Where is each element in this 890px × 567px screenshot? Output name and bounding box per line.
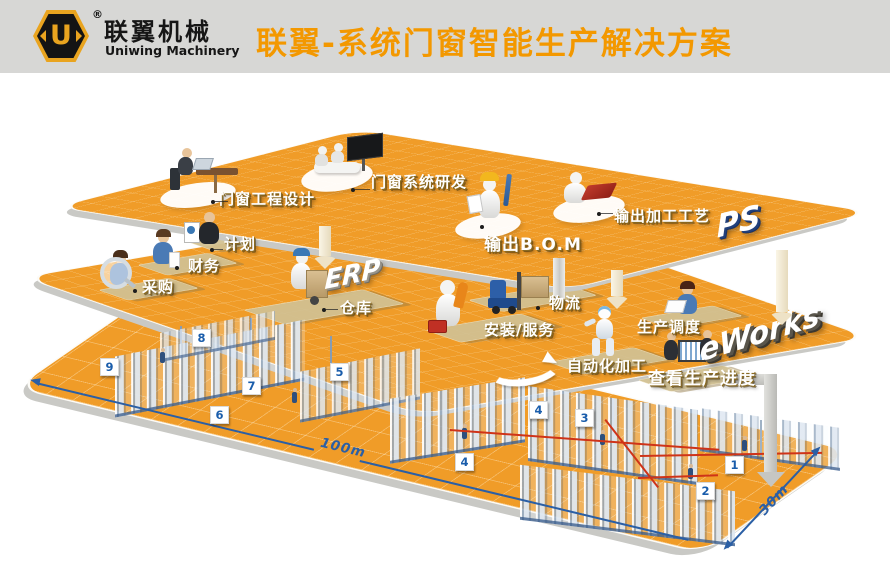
- magnifier-icon: [100, 257, 132, 289]
- floor-marker: 8: [192, 329, 211, 347]
- presentation-screen: [347, 133, 383, 161]
- page-title: 联翼-系统门窗智能生产解决方案: [256, 18, 733, 63]
- floor-marker: 5: [330, 363, 349, 381]
- floor-marker: 3: [575, 409, 594, 427]
- toolbox: [428, 320, 447, 333]
- floor-marker: 4: [529, 401, 548, 419]
- hard-hat: [480, 172, 499, 181]
- registered-mark: ®: [92, 8, 103, 21]
- floor-marker: 2: [696, 482, 715, 500]
- station-label-bom: 输出B.O.M: [484, 230, 582, 255]
- bom-sheet: [467, 194, 484, 214]
- installer-figure: [440, 280, 455, 295]
- robot-leg: [592, 338, 600, 356]
- solution-diagram: U ® 联翼机械 Uniwing Machinery 联翼-系统门窗智能生产解决…: [0, 0, 890, 567]
- station-label-finance: 财务: [188, 255, 220, 276]
- robot-leg: [606, 338, 614, 356]
- forklift-cab: [490, 280, 506, 300]
- station-label-install: 安装/服务: [484, 319, 554, 340]
- worker-cap: [293, 248, 310, 256]
- station-label-research: 门窗系统研发: [371, 171, 467, 192]
- cart-wheel: [310, 296, 319, 305]
- floor-marker: 6: [210, 406, 229, 424]
- uniwing-logo-icon: U: [33, 10, 89, 62]
- station-label-engineering: 门窗工程设计: [219, 188, 315, 209]
- station-label-warehouse: 仓库: [340, 297, 372, 318]
- station-label-purchase: 采购: [142, 276, 174, 297]
- brand-name-en: Uniwing Machinery: [105, 43, 240, 58]
- station-label-logistics: 物流: [549, 292, 581, 313]
- floor-marker: 7: [242, 377, 261, 395]
- progress-arrow-shaft: [764, 374, 777, 472]
- header-bar: U ® 联翼机械 Uniwing Machinery 联翼-系统门窗智能生产解决…: [0, 0, 890, 73]
- station-label-plan: 计划: [224, 233, 256, 254]
- floor-marker: 4: [455, 453, 474, 471]
- logo-monogram: U: [50, 22, 72, 49]
- pallet-boxes: [521, 276, 549, 298]
- station-label-process: 输出加工工艺: [614, 205, 710, 226]
- floor-marker: 1: [725, 456, 744, 474]
- dispatch-laptop: [664, 300, 687, 313]
- brand-name-cn: 联翼机械: [104, 12, 212, 47]
- hair: [156, 229, 171, 237]
- logo-chevron-right-icon: [76, 30, 82, 42]
- station-label-auto: 自动化加工: [567, 355, 647, 376]
- station-label-progress: 查看生产进度: [648, 364, 756, 389]
- logo-chevron-left-icon: [40, 30, 46, 42]
- progress-arrow-head-icon: [757, 472, 785, 487]
- station-label-dispatch: 生产调度: [637, 316, 701, 337]
- floor-marker: 9: [100, 358, 119, 376]
